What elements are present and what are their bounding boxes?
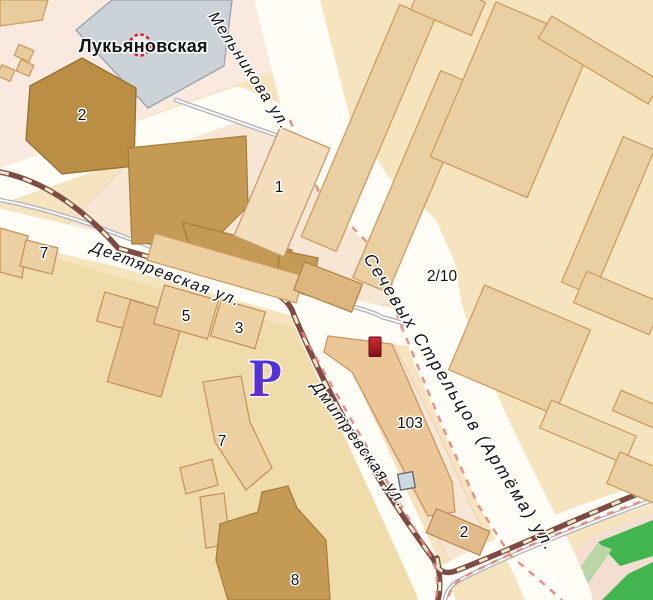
building-number-8: 8 (291, 572, 300, 589)
parking-icon[interactable]: Р (249, 348, 282, 408)
red-marker-icon[interactable] (369, 337, 381, 357)
map-canvas[interactable]: Мельникова ул. Сечевых Стрельцов (Артёма… (0, 0, 653, 600)
map-tile[interactable]: Мельникова ул. Сечевых Стрельцов (Артёма… (0, 0, 653, 600)
building-number-2-pink: 2 (460, 524, 469, 541)
building-number-2-topleft: 2 (78, 107, 87, 124)
building-number-7-mid: 7 (218, 433, 227, 450)
building-number-7-left: 7 (40, 245, 49, 262)
building-number-2-10: 2/10 (427, 268, 458, 285)
building-number-3: 3 (235, 320, 244, 337)
building-number-5: 5 (182, 308, 191, 325)
building-number-1: 1 (275, 179, 284, 196)
building-number-103: 103 (397, 415, 423, 432)
metro-station-label[interactable]: Лукьяновская (79, 36, 208, 56)
